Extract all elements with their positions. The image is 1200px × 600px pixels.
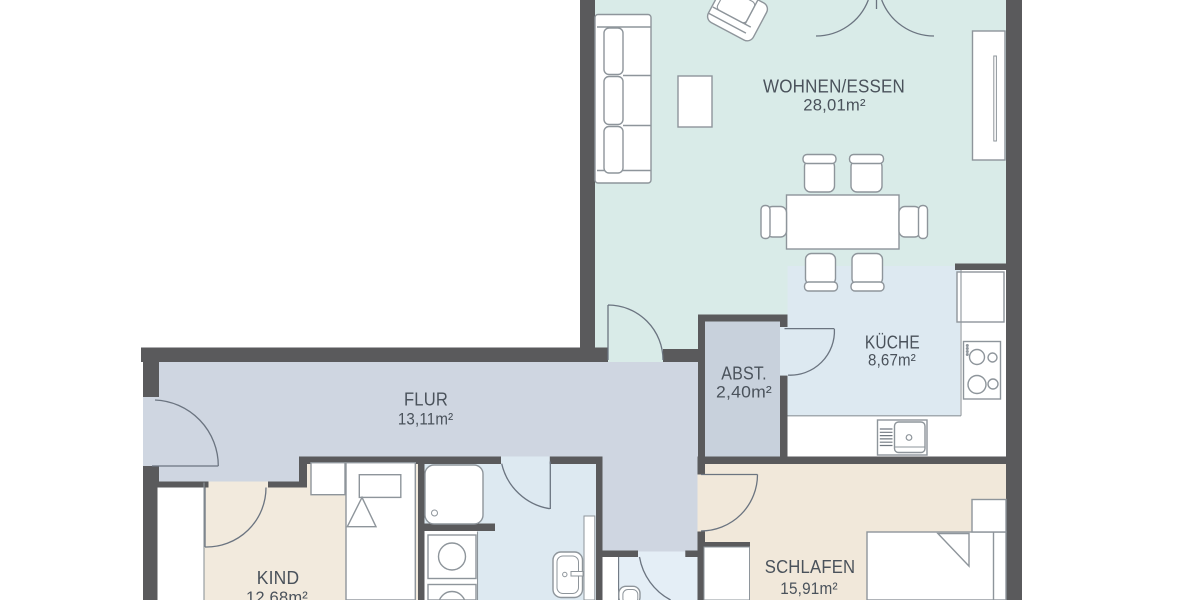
svg-text:12,68m²: 12,68m² — [246, 589, 308, 600]
svg-text:KÜCHE: KÜCHE — [865, 332, 920, 353]
svg-text:KIND: KIND — [257, 567, 300, 588]
svg-text:WOHNEN/ESSEN: WOHNEN/ESSEN — [763, 76, 905, 97]
svg-text:SCHLAFEN: SCHLAFEN — [765, 556, 856, 577]
svg-text:15,91m²: 15,91m² — [780, 580, 838, 598]
svg-text:13,11m²: 13,11m² — [398, 411, 454, 429]
svg-text:28,01m²: 28,01m² — [803, 97, 866, 115]
svg-text:2,40m²: 2,40m² — [716, 384, 772, 402]
svg-text:8,67m²: 8,67m² — [868, 352, 916, 370]
svg-text:ABST.: ABST. — [721, 363, 767, 384]
svg-text:FLUR: FLUR — [404, 389, 448, 410]
